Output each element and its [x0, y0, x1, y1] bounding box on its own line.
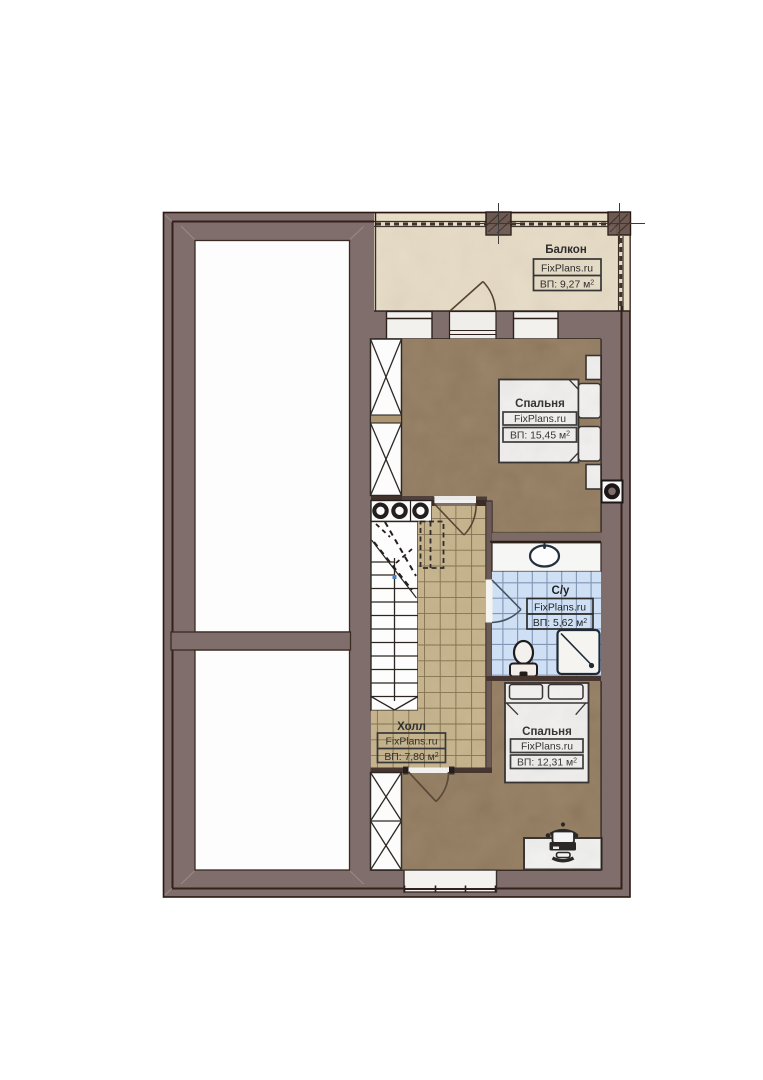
svg-text:С/у: С/у: [552, 585, 571, 597]
svg-text:FixPlans.ru: FixPlans.ru: [534, 603, 586, 614]
svg-text:ВП: 5,62 м2: ВП: 5,62 м2: [533, 618, 587, 629]
